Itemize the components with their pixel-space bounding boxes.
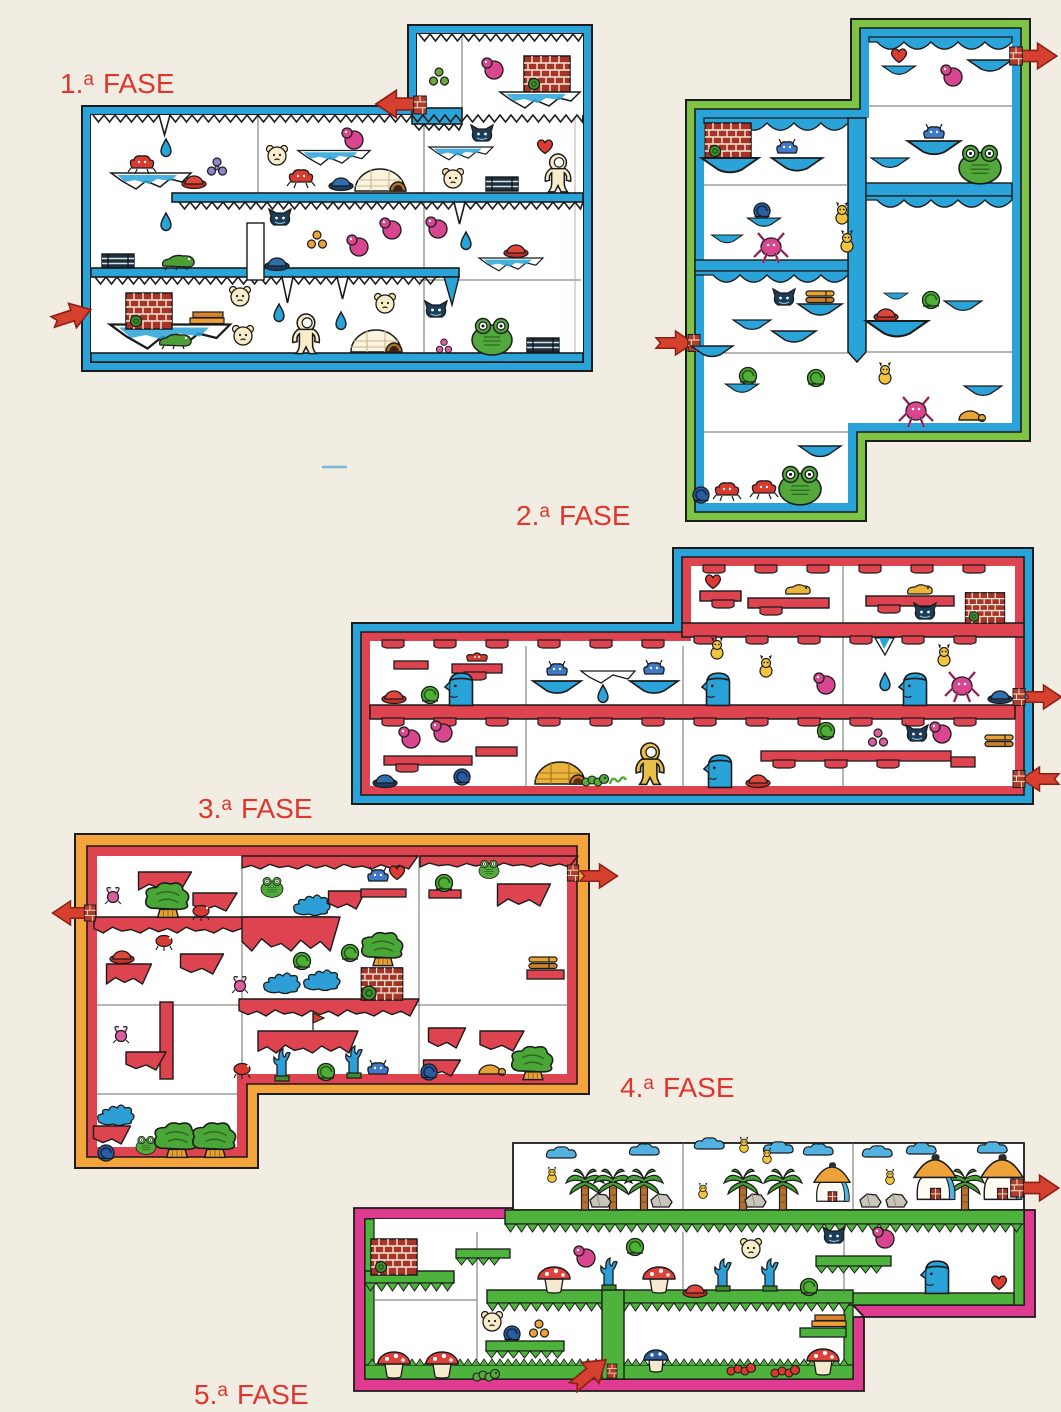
svg-text:3.aFASE: 3.aFASE — [198, 793, 313, 824]
svg-text:5.aFASE: 5.aFASE — [194, 1379, 309, 1410]
svg-text:2.aFASE: 2.aFASE — [516, 500, 631, 531]
svg-text:4.aFASE: 4.aFASE — [620, 1072, 735, 1103]
svg-text:1.aFASE: 1.aFASE — [60, 68, 175, 99]
